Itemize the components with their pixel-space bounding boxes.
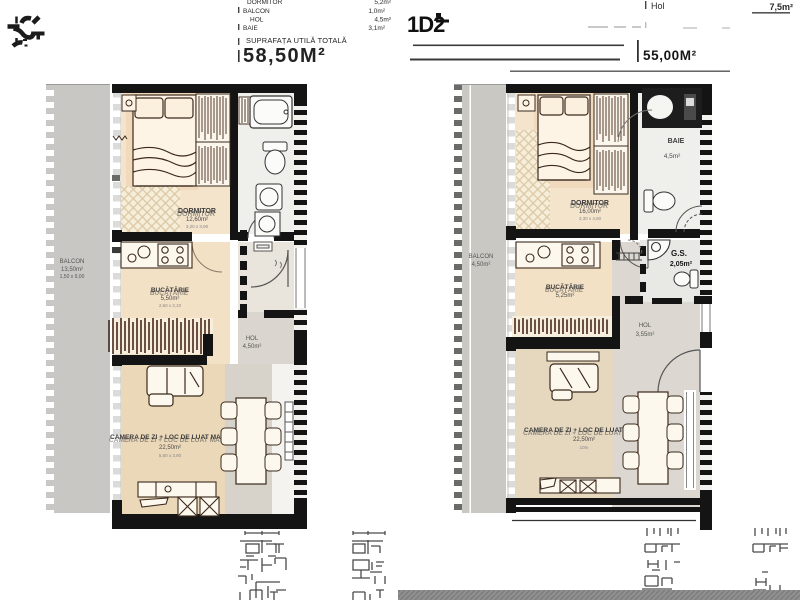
- svg-text:7,5m²: 7,5m²: [769, 2, 793, 12]
- svg-text:DORMITOR: DORMITOR: [571, 200, 609, 207]
- svg-text:1,0m²: 1,0m²: [368, 8, 385, 15]
- svg-text:22,50m²: 22,50m²: [159, 445, 181, 451]
- svg-text:12,60m²: 12,60m²: [186, 217, 208, 223]
- svg-text:22,50m²: 22,50m²: [573, 437, 595, 443]
- svg-text:10m: 10m: [580, 445, 589, 450]
- svg-text:BALCON: BALCON: [469, 254, 494, 260]
- svg-text:4,5m²: 4,5m²: [374, 17, 391, 24]
- svg-text:CAMERA DE ZI + LOC DE LUAT MAS: CAMERA DE ZI + LOC DE LUAT MASA: [110, 434, 230, 441]
- svg-text:BALCON: BALCON: [60, 259, 85, 265]
- svg-text:5,2m²: 5,2m²: [374, 0, 391, 6]
- svg-text:5,25m²: 5,25m²: [556, 293, 575, 299]
- svg-text:4,5m²: 4,5m²: [664, 153, 681, 160]
- svg-text:3,30 x 4,80: 3,30 x 4,80: [579, 216, 602, 221]
- svg-text:5,50m²: 5,50m²: [161, 296, 180, 302]
- svg-text:BALCON: BALCON: [243, 8, 270, 15]
- svg-text:2,60 x 2,10: 2,60 x 2,10: [159, 303, 182, 308]
- svg-text:3,55m²: 3,55m²: [636, 332, 655, 338]
- svg-text:5,60 x 3,80: 5,60 x 3,80: [159, 453, 182, 458]
- svg-text:G.S.: G.S.: [671, 249, 687, 258]
- svg-text:Hol: Hol: [651, 1, 665, 11]
- svg-text:HOL: HOL: [246, 336, 259, 342]
- svg-text:4,50m²: 4,50m²: [472, 262, 491, 268]
- svg-text:2,05m²: 2,05m²: [670, 261, 693, 268]
- svg-text:16,00m²: 16,00m²: [579, 209, 601, 215]
- svg-text:55,00M²: 55,00M²: [643, 48, 697, 63]
- svg-text:BAIE: BAIE: [243, 25, 258, 32]
- svg-text:BAIE: BAIE: [668, 138, 685, 145]
- svg-text:BUCĂTĂRIE: BUCĂTĂRIE: [546, 282, 585, 291]
- svg-text:DORMITOR: DORMITOR: [178, 208, 216, 215]
- svg-text:BUCĂTĂRIE: BUCĂTĂRIE: [151, 285, 190, 294]
- svg-text:3,1m²: 3,1m²: [368, 25, 385, 32]
- svg-text:3,20 x 3,90: 3,20 x 3,90: [186, 224, 209, 229]
- svg-text:DORMITOR: DORMITOR: [247, 0, 283, 6]
- svg-text:HOL: HOL: [250, 17, 264, 24]
- svg-text:4,50m²: 4,50m²: [243, 344, 262, 350]
- svg-text:SUPRAFAȚA UTILĂ TOTALĂ: SUPRAFAȚA UTILĂ TOTALĂ: [246, 36, 347, 45]
- svg-text:58,50M²: 58,50M²: [243, 45, 326, 67]
- svg-text:13,50m²: 13,50m²: [61, 267, 83, 273]
- svg-text:HOL: HOL: [639, 323, 652, 329]
- svg-text:1,50 x 9,00: 1,50 x 9,00: [60, 274, 85, 280]
